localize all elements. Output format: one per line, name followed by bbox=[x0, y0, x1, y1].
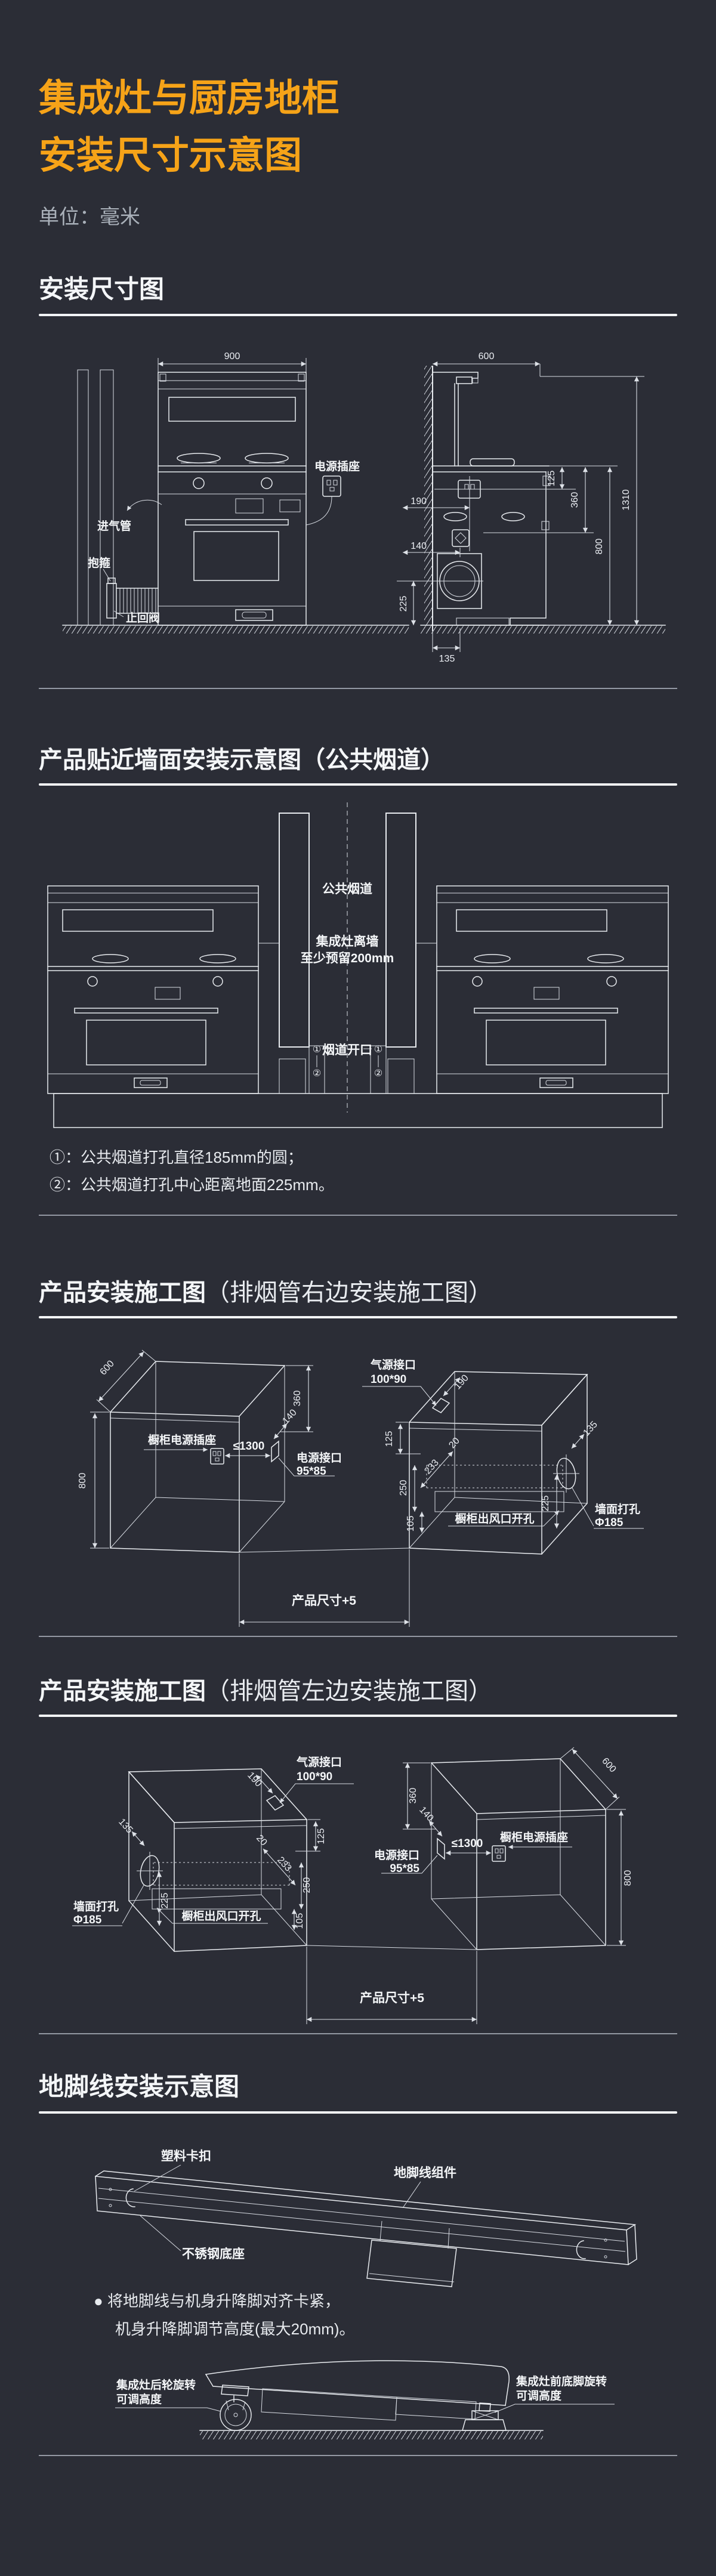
s3-heading-main: 产品安装施工图 bbox=[39, 1280, 206, 1306]
label-clamp: 抱箍 bbox=[88, 556, 110, 570]
gas-duct-and-valve bbox=[107, 500, 162, 618]
s3-heading: 产品安装施工图（排烟管右边安装施工图） bbox=[39, 1273, 677, 1308]
dim-105: 105 bbox=[406, 1516, 416, 1532]
dim-250: 250 bbox=[399, 1480, 409, 1496]
page: 集成灶与厨房地柜 安装尺寸示意图 单位：毫米 安装尺寸图 bbox=[39, 0, 677, 2456]
section-flue-install: 产品贴近墙面安装示意图（公共烟道） bbox=[39, 740, 677, 1200]
dim-225: 225 bbox=[399, 595, 409, 611]
label-public-flue: 公共烟道 bbox=[322, 882, 372, 896]
label-gas-pipe: 进气管 bbox=[97, 519, 131, 533]
dim-360: 360 bbox=[292, 1391, 303, 1407]
label-power-port-2: 95*85 bbox=[390, 1862, 419, 1875]
dim-135: 135 bbox=[581, 1419, 600, 1438]
dim-190: 190 bbox=[452, 1373, 471, 1391]
front-foot-leader bbox=[495, 2404, 615, 2413]
dim-800: 800 bbox=[78, 1473, 88, 1489]
s4-geometry-mirrored bbox=[72, 1747, 626, 2024]
label-power-socket: 电源插座 bbox=[314, 459, 360, 473]
page-header: 集成灶与厨房地柜 安装尺寸示意图 单位：毫米 bbox=[39, 0, 677, 230]
s2-heading-rule bbox=[39, 783, 677, 786]
section-construction-left: 产品安装施工图（排烟管左边安装施工图） 600 800 360 140 橱柜电源… bbox=[39, 1672, 677, 2021]
dim-800: 800 bbox=[623, 1870, 633, 1886]
label-wall-hole-1: 墙面打孔 bbox=[73, 1899, 119, 1913]
dim-125: 125 bbox=[316, 1828, 326, 1845]
stove-front-view bbox=[158, 372, 306, 625]
s5-note: ● 将地脚线与机身升降脚对齐卡紧， 机身升降脚调节高度(最大20mm)。 bbox=[39, 2287, 677, 2343]
install-dimensions-drawing: 900 600 1310 800 360 125 190 140 225 135… bbox=[39, 351, 677, 670]
s5-heading: 地脚线安装示意图 bbox=[39, 2067, 677, 2103]
label-front-foot-1: 集成灶前底脚旋转 bbox=[516, 2374, 607, 2388]
label-gas-port-1: 气源接口 bbox=[296, 1755, 342, 1769]
s2-notes: ①：公共烟道打孔直径185mm的圆； ②：公共烟道打孔中心距离地面225mm。 bbox=[39, 1144, 677, 1200]
label-wall-hole-2: Φ185 bbox=[73, 1914, 102, 1926]
page-title-line1: 集成灶与厨房地柜 bbox=[39, 70, 677, 128]
dim-233: 233 bbox=[422, 1457, 441, 1476]
label-gas-port-2: 100*90 bbox=[371, 1373, 406, 1386]
stove-feet-drawing: 集成灶后轮旋转 可调高度 集成灶前底脚旋转 可调高度 bbox=[39, 2352, 677, 2444]
dim-225: 225 bbox=[541, 1496, 551, 1512]
ground-hatch bbox=[63, 625, 665, 634]
label-skirting-assembly: 地脚线组件 bbox=[394, 2166, 456, 2180]
label-power-port-1: 电源接口 bbox=[297, 1451, 342, 1465]
label-outlet-hole: 橱柜出风口开孔 bbox=[181, 1909, 261, 1923]
dim-max1300: ≤1300 bbox=[233, 1440, 265, 1453]
power-socket bbox=[306, 476, 341, 525]
label-rear-wheel-2: 可调高度 bbox=[116, 2392, 162, 2406]
s3-geometry bbox=[90, 1350, 644, 1627]
label-rear-wheel-1: 集成灶后轮旋转 bbox=[116, 2378, 196, 2392]
s4-heading-rule bbox=[39, 1715, 677, 1717]
label-power-port-2: 95*85 bbox=[297, 1465, 326, 1478]
ground-slab bbox=[54, 1094, 662, 1128]
dim-600: 600 bbox=[479, 351, 495, 362]
front-adjustable-foot bbox=[462, 2403, 506, 2430]
dim-225: 225 bbox=[160, 1893, 170, 1909]
label-product-size: 产品尺寸+5 bbox=[360, 1991, 424, 2005]
dim-600: 600 bbox=[98, 1358, 116, 1377]
page-title-line2: 安装尺寸示意图 bbox=[39, 128, 677, 185]
dim-140: 140 bbox=[417, 1805, 436, 1823]
label-plastic-clip: 塑料卡扣 bbox=[161, 2149, 211, 2163]
dim-360: 360 bbox=[570, 492, 580, 508]
dim-600: 600 bbox=[600, 1756, 618, 1774]
s5-note-1: 将地脚线与机身升降脚对齐卡紧， bbox=[107, 2292, 340, 2310]
section-install-dimensions: 安装尺寸图 bbox=[39, 269, 677, 670]
s1-heading: 安装尺寸图 bbox=[39, 269, 677, 305]
dim-190: 190 bbox=[411, 496, 427, 506]
label-flue-opening: 烟道开口 bbox=[322, 1043, 372, 1057]
s5-heading-rule bbox=[39, 2111, 677, 2114]
divider-3 bbox=[39, 1636, 677, 1637]
dim-max1300: ≤1300 bbox=[452, 1837, 483, 1850]
page-title: 集成灶与厨房地柜 安装尺寸示意图 bbox=[39, 0, 677, 185]
label-steel-base: 不锈钢底座 bbox=[182, 2247, 245, 2261]
flue-install-drawing: 公共烟道 集成灶离墙 至少预留200mm 烟道开口 ① ① ② ② bbox=[39, 802, 677, 1136]
unit-label: 单位：毫米 bbox=[39, 200, 677, 230]
s2-heading: 产品贴近墙面安装示意图（公共烟道） bbox=[39, 740, 677, 775]
section-skirting: 地脚线安装示意图 塑料卡扣 地脚线组件 不锈钢底座 bbox=[39, 2067, 677, 2444]
s5-note-line1: ● 将地脚线与机身升降脚对齐卡紧， bbox=[94, 2287, 677, 2315]
dim-360: 360 bbox=[408, 1788, 418, 1804]
dim-1310: 1310 bbox=[621, 489, 631, 511]
divider-2 bbox=[39, 1215, 677, 1216]
bullet-icon: ● bbox=[94, 2292, 103, 2310]
marker-1-left: ① bbox=[313, 1045, 321, 1055]
label-wall-hole-2: Φ185 bbox=[595, 1516, 624, 1529]
skirting-assembly-leader bbox=[403, 2182, 421, 2208]
dim-140: 140 bbox=[280, 1407, 299, 1426]
right-stove bbox=[437, 886, 668, 1094]
rear-wheel-leader bbox=[115, 2408, 221, 2411]
label-gas-port-1: 气源接口 bbox=[370, 1358, 416, 1372]
dim-140: 140 bbox=[411, 541, 427, 551]
label-wall-gap-2: 至少预留200mm bbox=[301, 951, 394, 965]
label-power-port-1: 电源接口 bbox=[374, 1848, 419, 1862]
label-front-foot-2: 可调高度 bbox=[516, 2389, 562, 2402]
s1-heading-rule bbox=[39, 314, 677, 316]
marker-2-left: ② bbox=[313, 1068, 321, 1079]
dim-135: 135 bbox=[439, 654, 455, 664]
marker-2-right: ② bbox=[374, 1068, 382, 1079]
label-cabinet-socket: 橱柜电源插座 bbox=[147, 1433, 216, 1447]
skirting-assembly-drawing: 塑料卡扣 地脚线组件 不锈钢底座 bbox=[39, 2132, 677, 2284]
ground-hatch bbox=[200, 2430, 543, 2439]
construction-right-drawing: 600 800 360 140 橱柜电源插座 ≤1300 电源接口 95*85 … bbox=[39, 1332, 677, 1624]
s2-note-2: ②：公共烟道打孔中心距离地面225mm。 bbox=[50, 1171, 677, 1199]
dim-125: 125 bbox=[384, 1431, 394, 1447]
dim-105: 105 bbox=[295, 1913, 305, 1929]
marker-1-right: ① bbox=[374, 1045, 382, 1055]
s4-heading-main: 产品安装施工图 bbox=[39, 1678, 206, 1704]
construction-left-drawing: 600 800 360 140 橱柜电源插座 ≤1300 电源接口 95*85 … bbox=[39, 1729, 677, 2021]
divider-5 bbox=[39, 2455, 677, 2456]
label-product-size: 产品尺寸+5 bbox=[292, 1593, 356, 1608]
wall-riser-strips bbox=[78, 370, 113, 625]
divider-1 bbox=[39, 688, 677, 689]
label-gas-port-2: 100*90 bbox=[297, 1771, 332, 1783]
label-outlet-hole: 橱柜出风口开孔 bbox=[454, 1512, 534, 1525]
s4-heading: 产品安装施工图（排烟管左边安装施工图） bbox=[39, 1672, 677, 1706]
label-wall-gap-1: 集成灶离墙 bbox=[316, 934, 379, 949]
section-construction-right: 产品安装施工图（排烟管右边安装施工图） bbox=[39, 1273, 677, 1624]
rear-caster-wheel bbox=[220, 2385, 251, 2430]
skirting-bar bbox=[95, 2171, 637, 2265]
dim-20: 20 bbox=[254, 1833, 269, 1848]
dim-125: 125 bbox=[547, 470, 557, 486]
dim-800: 800 bbox=[594, 538, 604, 554]
s3-heading-rule bbox=[39, 1316, 677, 1318]
s5-note-2: 机身升降脚调节高度(最大20mm)。 bbox=[94, 2315, 677, 2343]
s4-heading-sub: （排烟管左边安装施工图） bbox=[206, 1678, 492, 1704]
dim-900: 900 bbox=[224, 351, 240, 362]
label-wall-hole-1: 墙面打孔 bbox=[595, 1502, 640, 1516]
dim-135: 135 bbox=[116, 1817, 135, 1835]
dim-233: 233 bbox=[275, 1855, 294, 1873]
skirting-foot bbox=[367, 2221, 456, 2287]
left-stove bbox=[48, 886, 258, 1094]
steel-base-leader bbox=[140, 2216, 181, 2251]
stove-underside bbox=[206, 2361, 509, 2420]
divider-4 bbox=[39, 2033, 677, 2034]
dim-190: 190 bbox=[245, 1770, 264, 1789]
dim-250: 250 bbox=[302, 1877, 312, 1894]
s2-note-1: ①：公共烟道打孔直径185mm的圆； bbox=[50, 1144, 677, 1172]
dim-20: 20 bbox=[447, 1436, 462, 1451]
label-check-valve: 止回阀 bbox=[126, 611, 160, 625]
s3-heading-sub: （排烟管右边安装施工图） bbox=[206, 1280, 492, 1306]
label-cabinet-socket: 橱柜电源插座 bbox=[499, 1830, 568, 1844]
